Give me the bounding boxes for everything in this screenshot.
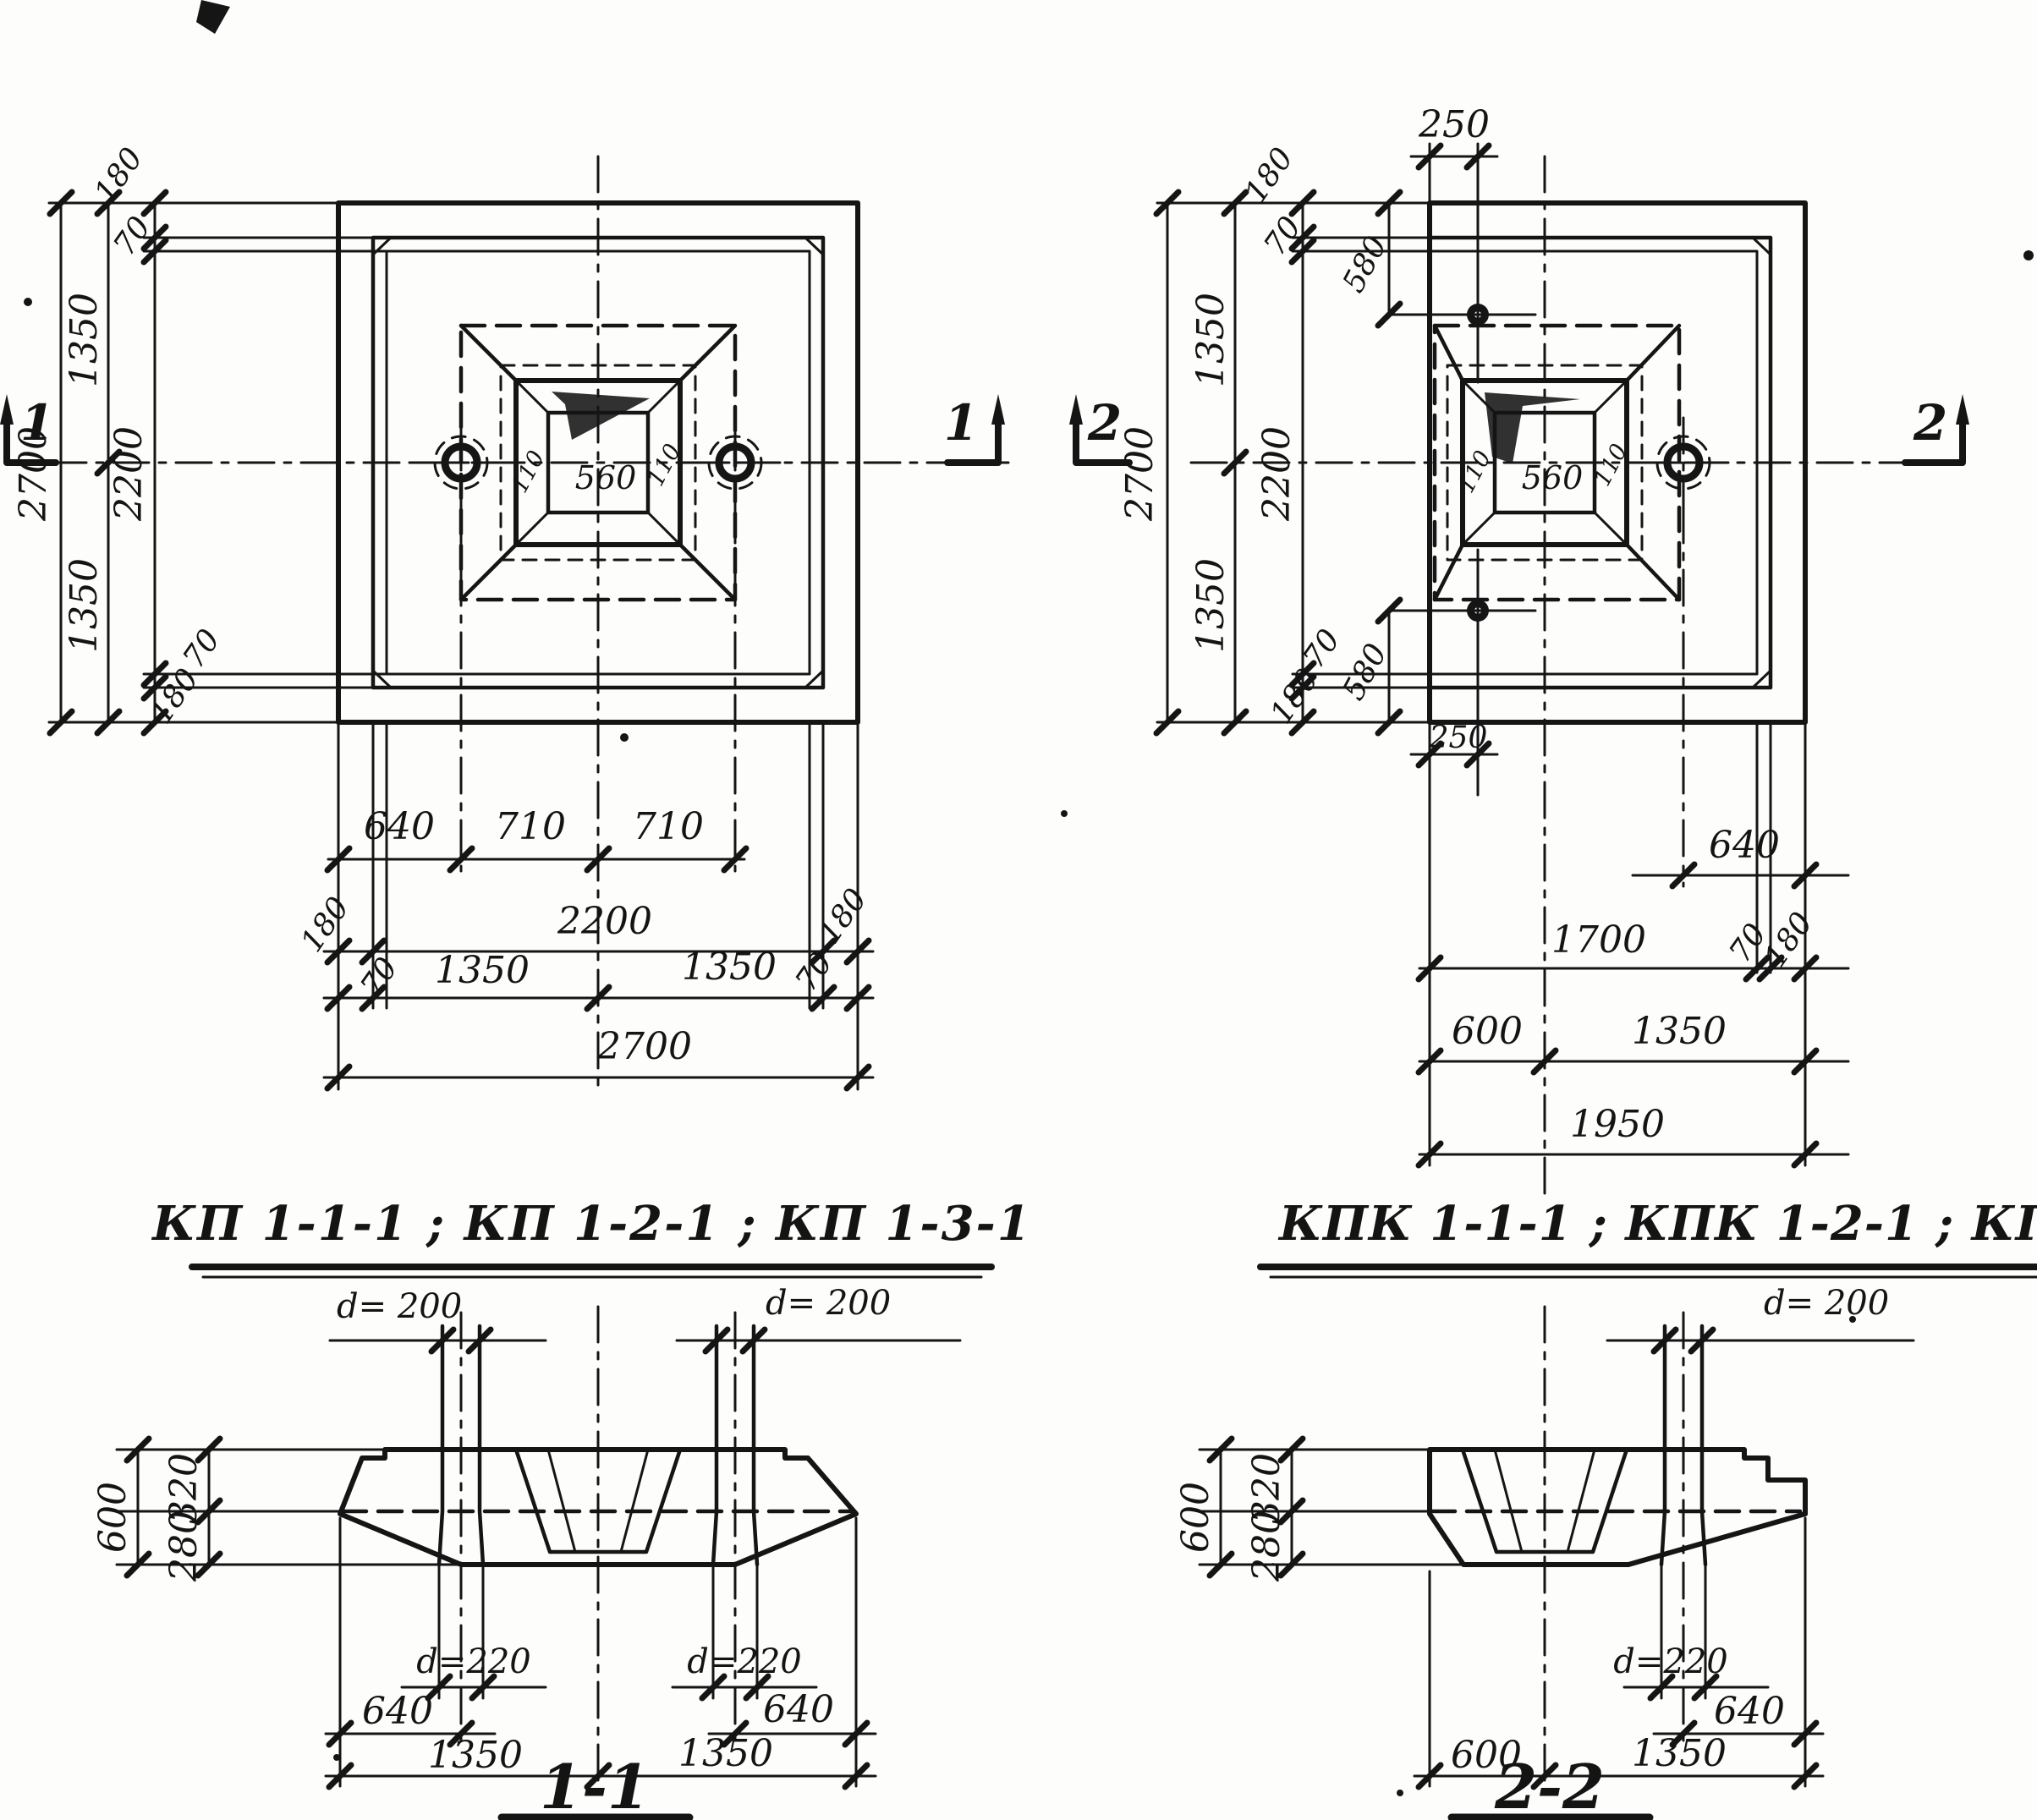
dim-label: 1350 xyxy=(682,946,777,989)
dim-label: 600 xyxy=(91,1482,135,1553)
section-mark-2-right: 2 xyxy=(1905,394,1969,463)
socket-wall-label: 110 xyxy=(1453,447,1497,497)
plan-right-hole-bottom xyxy=(1389,550,1535,795)
plan-left: 1 1 2700 1350 1350 2200 180 70 70 180 64… xyxy=(0,142,1008,1094)
dim-label: 640 xyxy=(1709,824,1780,867)
section-mark-2-right-label: 2 xyxy=(1913,394,1947,452)
plan-right-dim-ticks-top xyxy=(1378,145,1489,326)
dim-label: 710 xyxy=(495,805,566,848)
title-kp: КП 1-1-1 ; КП 1-2-1 ; КП 1-3-1 xyxy=(151,1196,1032,1252)
dim-label: 2700 xyxy=(12,426,55,522)
dim-label: 180 xyxy=(1264,663,1326,731)
dim-label: 1350 xyxy=(63,293,106,387)
dim-label: 640 xyxy=(364,805,435,848)
section-1-1: 600 320 280 d= 200 d= 200 d=220 d=220 64… xyxy=(91,1284,960,1820)
dim-label: 1350 xyxy=(1189,558,1233,653)
drawing-page: 1 1 2700 1350 1350 2200 180 70 70 180 64… xyxy=(0,0,2037,1820)
pipe-diameter-label: d= 200 xyxy=(766,1284,891,1323)
dim-label: 1350 xyxy=(1189,293,1233,387)
scan-speck xyxy=(333,1754,340,1761)
plan-left-ink-smudge xyxy=(552,392,650,440)
blueprint-canvas: 1 1 2700 1350 1350 2200 180 70 70 180 64… xyxy=(0,0,2037,1820)
scan-speck xyxy=(620,733,629,742)
plan-right-dims-under xyxy=(1379,611,1497,1165)
sleeve-diameter-label: d=220 xyxy=(416,1642,530,1681)
plan-right: 2 2 2700 1350 1350 2200 180 70 70 180 25… xyxy=(1069,103,1969,1194)
scan-speck xyxy=(24,298,32,306)
plan-right-ink-smudge xyxy=(1485,392,1580,463)
socket-wall-label: 110 xyxy=(507,447,551,497)
section-mark-1-right: 1 xyxy=(944,394,1005,463)
dim-label: 70 xyxy=(1297,623,1348,675)
sleeve-diameter-label: d=220 xyxy=(687,1642,801,1681)
dim-label: 1350 xyxy=(1632,1010,1727,1053)
section1-title: 1-1 xyxy=(540,1751,650,1820)
dim-label: 1350 xyxy=(678,1732,773,1775)
dim-label: 180 xyxy=(88,142,150,210)
dim-label: 1350 xyxy=(435,949,530,992)
dim-label: 640 xyxy=(763,1688,834,1731)
section1-axes xyxy=(461,1307,735,1789)
dim-label: 1350 xyxy=(428,1734,523,1777)
dim-label: 1350 xyxy=(63,558,106,653)
section-mark-2-left-label: 2 xyxy=(1087,394,1122,452)
dim-label: 600 xyxy=(1452,1010,1523,1053)
pipe-diameter-label: d= 200 xyxy=(337,1287,462,1326)
section-mark-1-right-label: 1 xyxy=(944,394,978,452)
dim-label: 640 xyxy=(362,1690,433,1733)
section2-height-dims xyxy=(1200,1450,1465,1565)
dim-label: 1950 xyxy=(1570,1103,1665,1146)
section2-outline xyxy=(1430,1450,1805,1565)
dim-label: 600 xyxy=(1174,1482,1217,1553)
dim-label: 180 xyxy=(1238,142,1300,210)
dim-label: 2700 xyxy=(1118,426,1161,522)
section2-title: 2-2 xyxy=(1494,1751,1605,1820)
dim-label: 580 xyxy=(1337,639,1394,706)
dim-label: 280 xyxy=(162,1510,206,1582)
socket-width-label: 560 xyxy=(1522,459,1584,496)
dim-label: 640 xyxy=(1714,1690,1785,1733)
dim-label: 2200 xyxy=(557,900,652,943)
dim-label: 2200 xyxy=(1255,426,1299,522)
dim-label: 710 xyxy=(633,805,704,848)
dim-label: 2700 xyxy=(596,1025,692,1068)
dim-label: 580 xyxy=(1337,231,1394,299)
section-2-2: 600 320 280 d= 200 d=220 640 600 1350 2-… xyxy=(1174,1284,1913,1820)
plan-right-hole-top xyxy=(1389,162,1535,382)
plan-right-dims-top xyxy=(1379,144,1497,315)
dim-label: 180 xyxy=(294,891,356,959)
scan-speck xyxy=(2023,250,2034,260)
titles: КП 1-1-1 ; КП 1-2-1 ; КП 1-3-1 КПК 1-1-1… xyxy=(151,1196,2037,1277)
sleeve-diameter-label: d=220 xyxy=(1613,1642,1727,1681)
dim-label: 2200 xyxy=(107,426,151,522)
dim-label: 280 xyxy=(1245,1510,1288,1582)
dim-label: 1700 xyxy=(1551,918,1646,962)
scan-blot-top-left xyxy=(196,0,230,34)
dim-label: 1350 xyxy=(1632,1732,1727,1775)
scan-speck xyxy=(1397,1790,1403,1796)
scan-speck xyxy=(1849,1316,1856,1323)
dim-label: 180 xyxy=(812,883,874,951)
pipe-diameter-label: d= 200 xyxy=(1764,1284,1889,1323)
dim-label: 250 xyxy=(1429,721,1488,755)
title-kpk: КПК 1-1-1 ; КПК 1-2-1 ; КПК 1-3-1 xyxy=(1277,1196,2037,1252)
socket-width-label: 560 xyxy=(575,459,637,496)
scan-speck xyxy=(1061,810,1068,817)
dim-label: 250 xyxy=(1418,103,1490,146)
dim-label: 70 xyxy=(177,623,228,675)
